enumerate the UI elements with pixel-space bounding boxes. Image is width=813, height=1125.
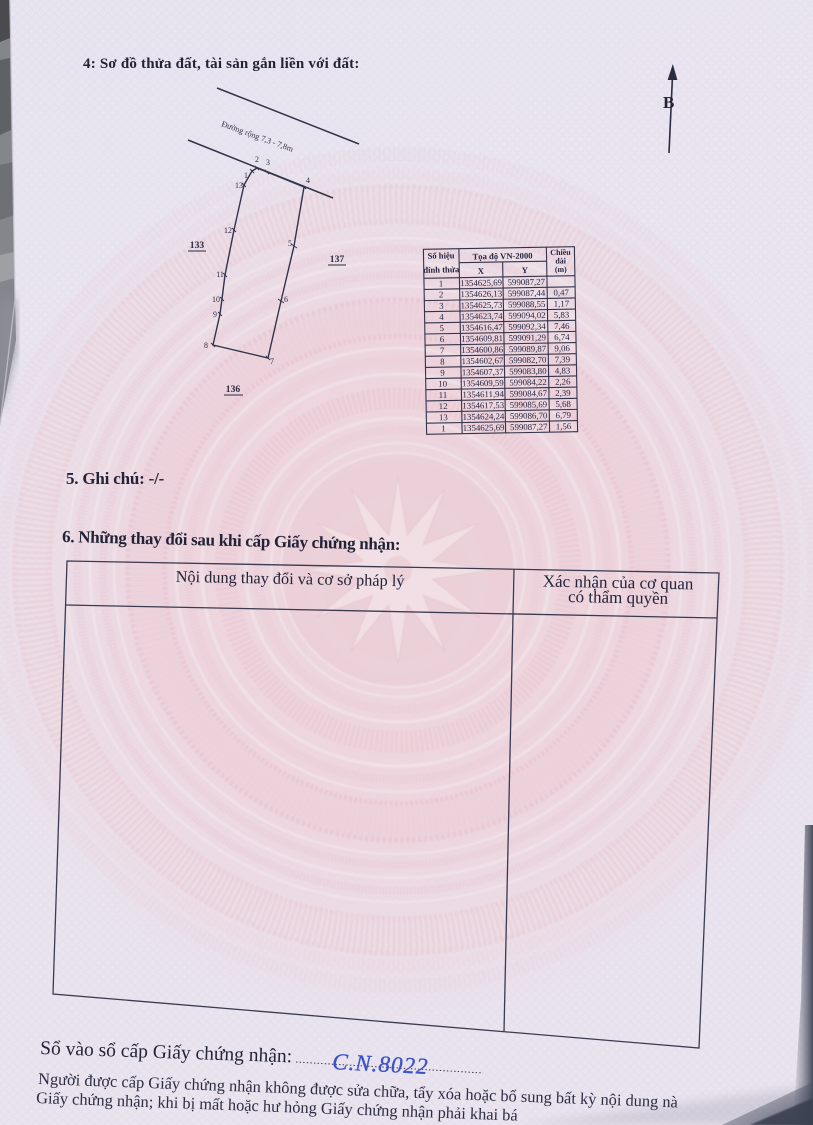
svg-text:7: 7 bbox=[440, 345, 445, 355]
svg-text:13: 13 bbox=[235, 181, 243, 190]
svg-text:1,56: 1,56 bbox=[556, 421, 572, 431]
svg-text:7,46: 7,46 bbox=[554, 321, 570, 331]
svg-text:5: 5 bbox=[288, 239, 292, 248]
svg-text:599091,29: 599091,29 bbox=[508, 332, 546, 343]
svg-text:5,68: 5,68 bbox=[555, 399, 571, 409]
svg-text:2,26: 2,26 bbox=[555, 376, 571, 386]
svg-text:1354609,59: 1354609,59 bbox=[462, 378, 505, 389]
svg-text:9: 9 bbox=[213, 310, 217, 319]
svg-text:6,79: 6,79 bbox=[556, 410, 572, 420]
svg-text:5. Ghi chú: -/-: 5. Ghi chú: -/- bbox=[66, 469, 165, 488]
svg-text:2,39: 2,39 bbox=[555, 388, 571, 398]
svg-text:B: B bbox=[663, 93, 674, 112]
svg-text:1354607,37: 1354607,37 bbox=[462, 367, 505, 378]
svg-text:1354616,47: 1354616,47 bbox=[461, 322, 504, 333]
svg-text:133: 133 bbox=[190, 240, 205, 251]
svg-text:Tọa độ VN-2000: Tọa độ VN-2000 bbox=[472, 250, 532, 261]
svg-text:4: Sơ đồ thửa đất, tài sản gắn: 4: Sơ đồ thửa đất, tài sản gắn liền với … bbox=[83, 56, 360, 72]
svg-text:3: 3 bbox=[266, 158, 270, 167]
svg-text:1354611,94: 1354611,94 bbox=[462, 389, 504, 400]
svg-text:9: 9 bbox=[440, 368, 445, 378]
svg-text:599088,55: 599088,55 bbox=[508, 299, 546, 310]
svg-text:10: 10 bbox=[438, 379, 448, 389]
svg-text:8: 8 bbox=[204, 341, 208, 350]
svg-text:có thẩm quyền: có thẩm quyền bbox=[568, 587, 669, 608]
svg-text:1354609,81: 1354609,81 bbox=[461, 333, 503, 344]
svg-text:2: 2 bbox=[255, 155, 259, 164]
svg-text:5,83: 5,83 bbox=[554, 310, 570, 320]
svg-text:11: 11 bbox=[216, 270, 224, 279]
svg-text:4,83: 4,83 bbox=[555, 365, 571, 375]
svg-text:3: 3 bbox=[439, 301, 444, 311]
svg-text:10: 10 bbox=[212, 295, 220, 304]
svg-text:12: 12 bbox=[439, 401, 448, 411]
svg-text:1354600,86: 1354600,86 bbox=[461, 344, 504, 355]
svg-text:599083,80: 599083,80 bbox=[509, 366, 547, 377]
svg-text:8: 8 bbox=[440, 356, 445, 366]
svg-text:11: 11 bbox=[439, 390, 448, 400]
svg-text:đỉnh thửa: đỉnh thửa bbox=[423, 264, 460, 275]
svg-text:6,74: 6,74 bbox=[554, 332, 570, 342]
svg-text:599084,22: 599084,22 bbox=[509, 377, 547, 388]
svg-text:Số hiệu: Số hiệu bbox=[427, 250, 454, 260]
svg-text:13: 13 bbox=[439, 412, 449, 422]
svg-text:1: 1 bbox=[441, 423, 446, 433]
svg-text:1: 1 bbox=[244, 171, 248, 180]
svg-text:4: 4 bbox=[439, 312, 444, 322]
svg-text:599082,70: 599082,70 bbox=[509, 355, 547, 366]
svg-text:599084,67: 599084,67 bbox=[509, 388, 547, 399]
svg-text:C.N.8022: C.N.8022 bbox=[332, 1049, 429, 1079]
svg-text:1354625,69: 1354625,69 bbox=[463, 422, 506, 433]
svg-text:137: 137 bbox=[330, 254, 345, 265]
svg-text:599087,27: 599087,27 bbox=[510, 421, 548, 432]
svg-text:6: 6 bbox=[440, 334, 445, 344]
svg-text:9,06: 9,06 bbox=[554, 343, 570, 353]
svg-text:599086,70: 599086,70 bbox=[510, 410, 548, 421]
svg-text:1354625,69: 1354625,69 bbox=[460, 277, 503, 288]
svg-text:1354602,67: 1354602,67 bbox=[461, 355, 504, 366]
svg-text:Y: Y bbox=[522, 265, 529, 275]
svg-text:599087,44: 599087,44 bbox=[508, 288, 546, 299]
svg-text:1354626,13: 1354626,13 bbox=[460, 288, 503, 299]
svg-text:136: 136 bbox=[226, 384, 241, 395]
svg-text:(m): (m) bbox=[555, 265, 567, 274]
svg-text:599094,02: 599094,02 bbox=[508, 310, 546, 321]
svg-text:599085,69: 599085,69 bbox=[510, 399, 548, 410]
svg-text:1354623,74: 1354623,74 bbox=[461, 311, 504, 322]
svg-text:599092,34: 599092,34 bbox=[508, 321, 546, 332]
svg-text:1: 1 bbox=[439, 278, 444, 288]
svg-text:X: X bbox=[478, 266, 485, 276]
svg-text:0,47: 0,47 bbox=[553, 287, 569, 297]
svg-text:1,17: 1,17 bbox=[554, 298, 570, 308]
svg-text:2: 2 bbox=[439, 289, 444, 299]
svg-text:12: 12 bbox=[224, 226, 232, 235]
svg-text:599089,87: 599089,87 bbox=[509, 343, 547, 354]
svg-text:4: 4 bbox=[306, 176, 310, 185]
svg-text:1354617,53: 1354617,53 bbox=[462, 400, 505, 411]
svg-text:7: 7 bbox=[270, 357, 274, 366]
svg-text:1354625,73: 1354625,73 bbox=[461, 300, 504, 311]
svg-text:1354624,24: 1354624,24 bbox=[462, 411, 505, 422]
svg-text:7,39: 7,39 bbox=[555, 354, 571, 364]
svg-text:599087,27: 599087,27 bbox=[508, 277, 546, 288]
svg-text:5: 5 bbox=[439, 323, 444, 333]
svg-text:6: 6 bbox=[284, 295, 288, 304]
